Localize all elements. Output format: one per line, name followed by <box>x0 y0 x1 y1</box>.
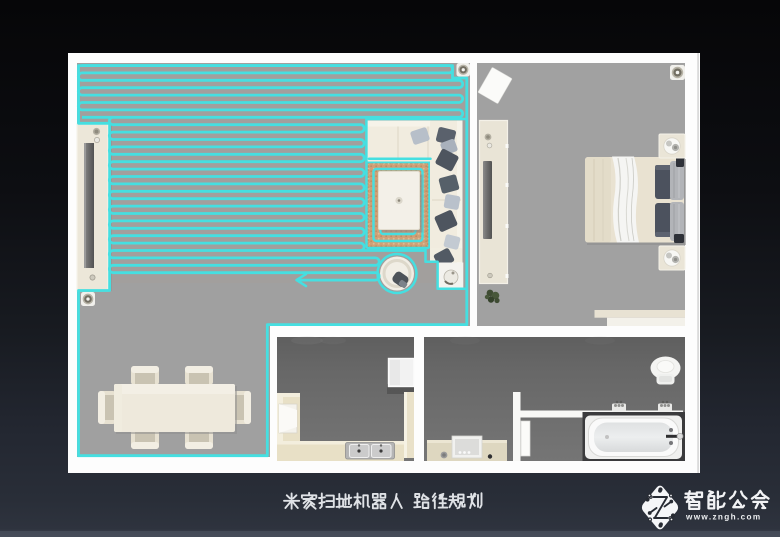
svg-text:www.zngh.com: www.zngh.com <box>685 513 761 522</box>
